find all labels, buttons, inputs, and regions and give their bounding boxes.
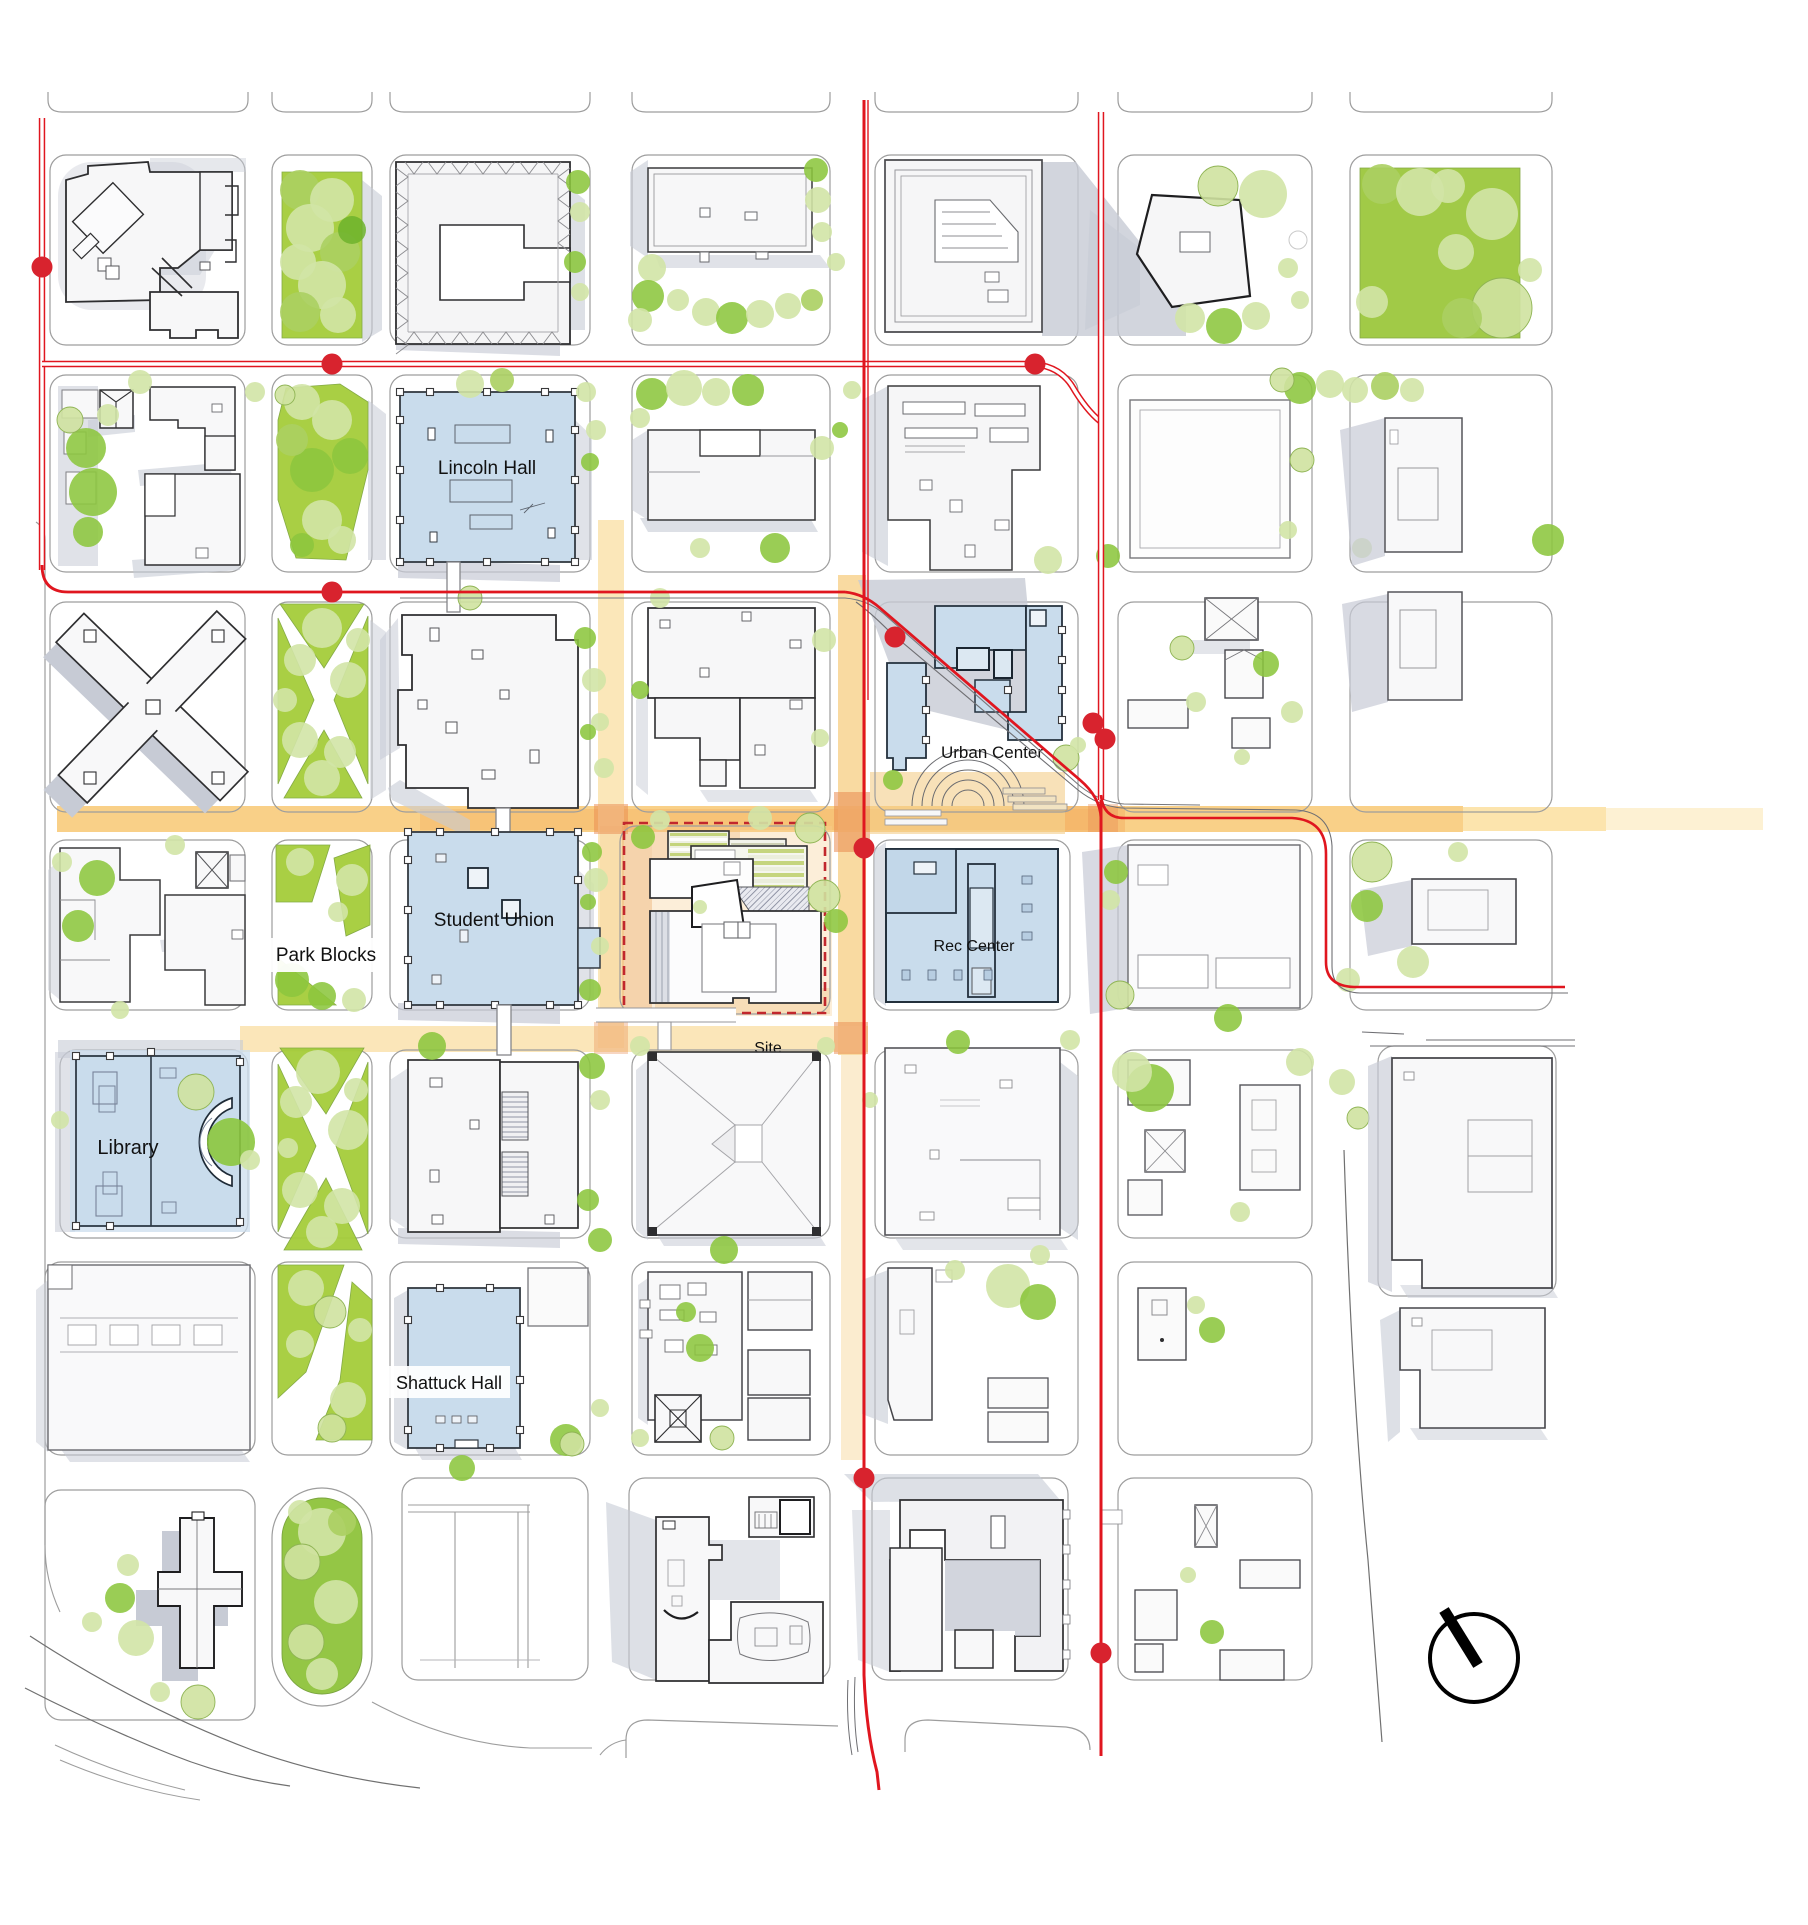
svg-text:Student Union: Student Union [434, 910, 554, 931]
svg-text:Rec Center: Rec Center [934, 938, 1016, 955]
svg-text:Shattuck Hall: Shattuck Hall [396, 1373, 502, 1393]
svg-text:Lincoln Hall: Lincoln Hall [438, 458, 536, 479]
svg-text:Park Blocks: Park Blocks [276, 945, 376, 966]
svg-text:Urban Center: Urban Center [941, 743, 1043, 762]
svg-text:Library: Library [97, 1137, 158, 1159]
